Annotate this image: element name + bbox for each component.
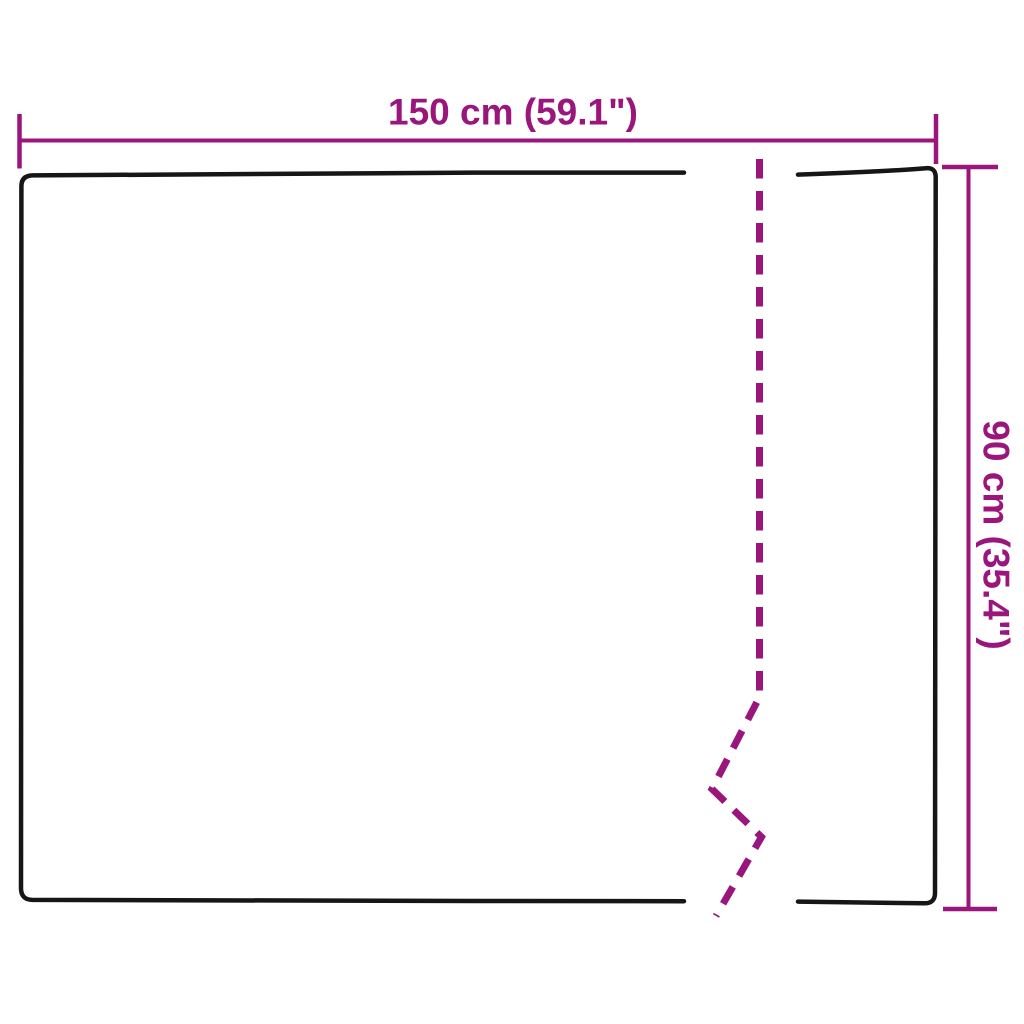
diagram-artwork <box>0 0 1024 1024</box>
product-outline-right-section <box>798 168 936 903</box>
fold-dashed-line <box>712 159 762 916</box>
dimension-diagram: 150 cm (59.1") 90 cm (35.4") <box>0 0 1024 1024</box>
product-outline-left-section <box>21 173 684 902</box>
width-dimension-label: 150 cm (59.1") <box>388 94 638 131</box>
height-dimension-label: 90 cm (35.4") <box>978 420 1015 649</box>
